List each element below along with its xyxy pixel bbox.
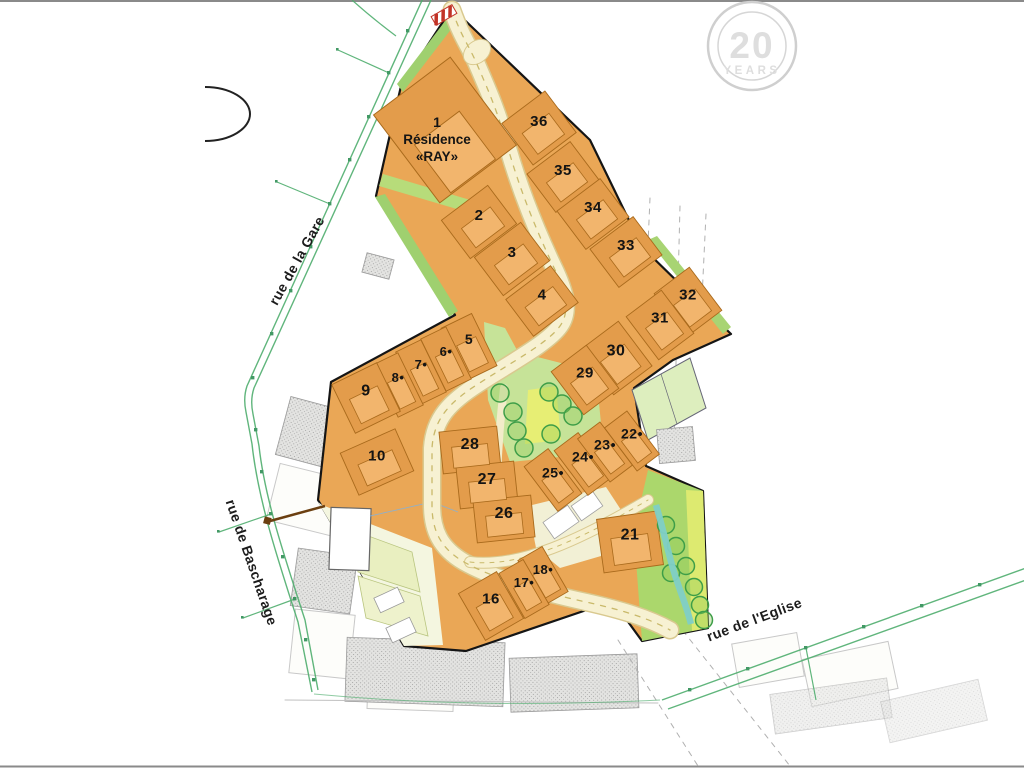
lot-number: 16 xyxy=(482,591,500,608)
lot-number: 36 xyxy=(530,113,548,130)
lot-number: 35 xyxy=(554,162,572,179)
lot-number: 9 xyxy=(361,383,370,400)
lot-number: 5 xyxy=(465,331,473,347)
lot-number: 32 xyxy=(679,287,697,304)
lot-number: 30 xyxy=(607,342,626,359)
lot-number: 18• xyxy=(533,562,554,577)
lot-number: 10 xyxy=(368,447,386,464)
lot-number: 8• xyxy=(392,370,405,385)
lot-number: 29 xyxy=(576,365,594,382)
lot-number: 7• xyxy=(415,357,428,372)
lot-number: 28 xyxy=(461,436,480,453)
badge-label: YEARS xyxy=(723,65,780,77)
lot-number: 17• xyxy=(514,575,535,590)
badge-number: 20 xyxy=(729,25,774,66)
lot-number: 33 xyxy=(617,237,635,254)
lot-number: 2 xyxy=(475,207,484,224)
lot-number: 25• xyxy=(542,464,564,480)
lot-number: 3 xyxy=(508,244,517,261)
lot-number: 34 xyxy=(584,199,602,216)
lot-number: 31 xyxy=(651,310,669,327)
lot-number: 26 xyxy=(495,505,514,522)
lot-number: 22• xyxy=(621,426,643,442)
site-plan-map: 20 YEARS xyxy=(0,0,1024,768)
residence-name-line2: «RAY» xyxy=(416,149,458,164)
lot-number: 4 xyxy=(538,286,547,303)
residence-name-line1: Résidence xyxy=(403,132,471,147)
residence-lot-number: 1 xyxy=(433,114,441,130)
lot-number: 6• xyxy=(440,344,453,359)
lot-number: 21 xyxy=(621,527,640,544)
lot-number: 23• xyxy=(594,437,616,453)
lot-number: 24• xyxy=(572,448,594,464)
lot-number: 27 xyxy=(478,471,497,488)
